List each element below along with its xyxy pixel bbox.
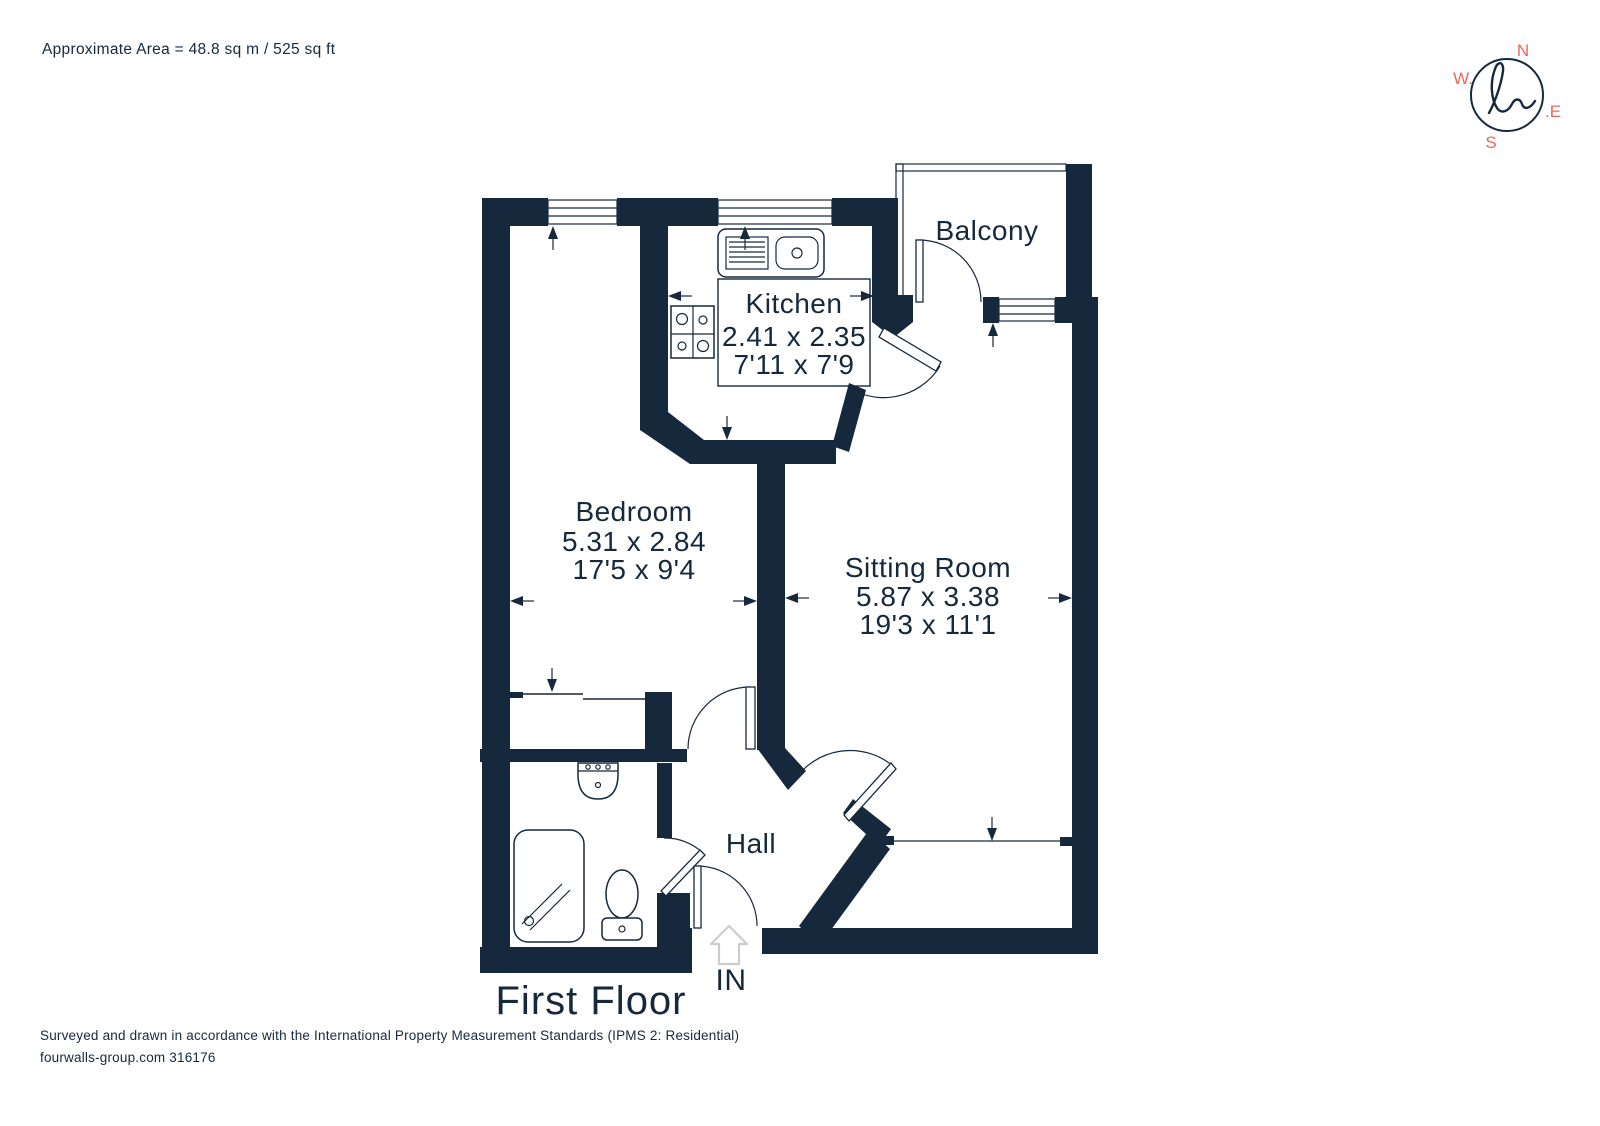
bedroom-dims-metric: 5.31 x 2.84 xyxy=(562,526,706,557)
balcony-door xyxy=(916,240,981,302)
logo-h-icon xyxy=(1489,63,1535,113)
compass-west: W. xyxy=(1453,69,1473,88)
basin-icon xyxy=(578,763,618,799)
compass-north: N xyxy=(1517,41,1529,60)
sink-icon xyxy=(718,229,824,277)
bathroom-fixtures xyxy=(514,763,642,942)
bedroom-dims-imperial: 17'5 x 9'4 xyxy=(572,554,695,585)
bedroom-label: Bedroom xyxy=(575,496,692,527)
bedroom-door xyxy=(688,687,755,749)
kitchen-dims-imperial: 7'11 x 7'9 xyxy=(733,349,854,380)
floor-title: First Floor xyxy=(496,979,687,1023)
footer-disclaimer: Surveyed and drawn in accordance with th… xyxy=(40,1028,739,1043)
closet-sliding-doors xyxy=(512,694,645,699)
compass: N W. .E S xyxy=(1453,41,1561,152)
kitchen-label: Kitchen xyxy=(746,288,843,319)
footer-reference: fourwalls-group.com 316176 xyxy=(40,1050,216,1065)
floorplan-page: Approximate Area = 48.8 sq m / 525 sq ft… xyxy=(0,0,1600,1126)
compass-east: .E xyxy=(1545,102,1561,121)
toilet-icon xyxy=(602,870,642,940)
hall-label: Hall xyxy=(726,828,776,859)
floorplan-drawing: Approximate Area = 48.8 sq m / 525 sq ft… xyxy=(0,0,1600,1126)
entrance-in-label: IN xyxy=(716,964,747,997)
shower-icon xyxy=(514,830,584,942)
kitchen-dims-metric: 2.41 x 2.35 xyxy=(722,321,866,352)
sitting-room-label: Sitting Room xyxy=(845,552,1011,583)
hob-icon xyxy=(671,306,714,358)
sitting-room-dims-imperial: 19'3 x 11'1 xyxy=(859,609,996,640)
approx-area-label: Approximate Area = 48.8 sq m / 525 sq ft xyxy=(42,41,336,58)
entry-door xyxy=(694,866,757,928)
balcony-label: Balcony xyxy=(935,215,1038,246)
compass-south: S xyxy=(1485,133,1496,152)
compass-circle xyxy=(1471,59,1543,131)
sitting-room-dims-metric: 5.87 x 3.38 xyxy=(856,581,1000,612)
